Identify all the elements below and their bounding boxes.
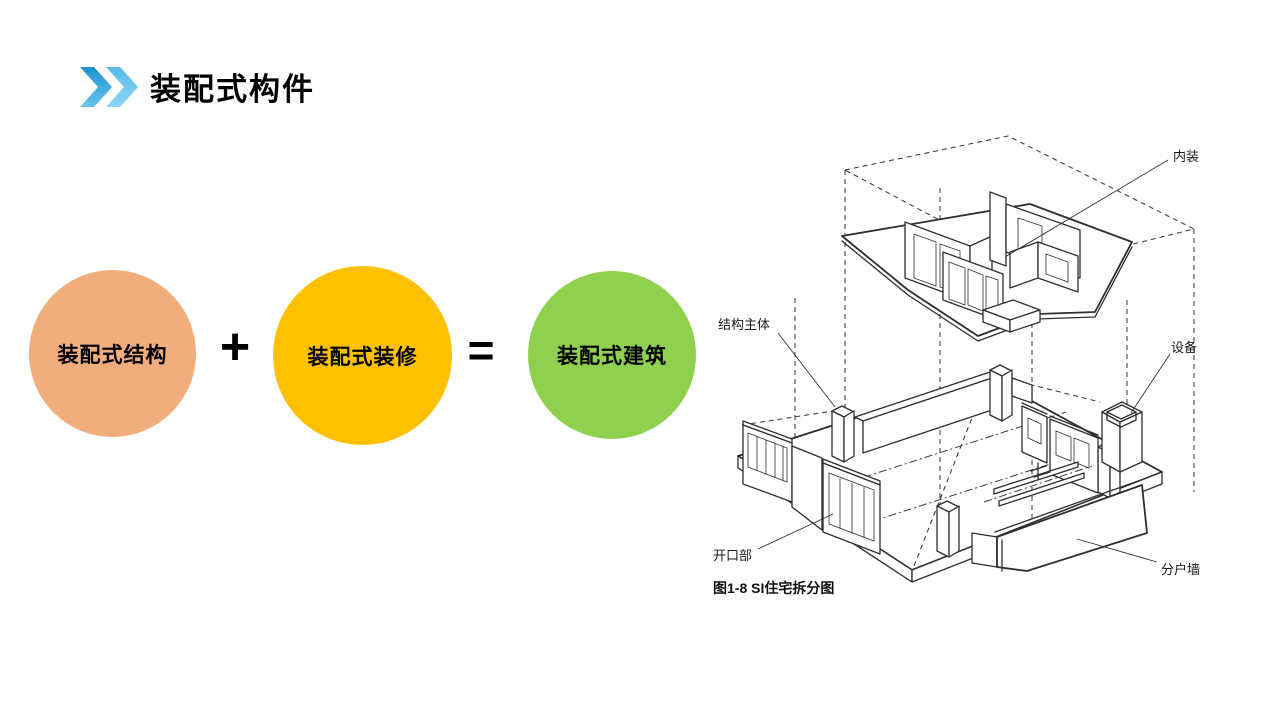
- circle-prefab-decoration: 装配式装修: [273, 266, 452, 445]
- double-chevron-icon: [80, 66, 142, 108]
- structure-assembly: [738, 365, 1162, 582]
- equals-operator: =: [446, 315, 516, 385]
- circle-prefab-decoration-label: 装配式装修: [308, 341, 418, 371]
- label-party-wall: 分户墙: [1161, 562, 1200, 577]
- si-house-exploded-figure: 内装 结构主体 设备 开口部 分户墙 图1-8 SI住宅拆分图: [700, 130, 1240, 600]
- column-front: [937, 501, 959, 557]
- circle-prefab-building: 装配式建筑: [528, 271, 696, 439]
- plus-operator: +: [200, 312, 270, 382]
- figure-caption: 图1-8 SI住宅拆分图: [713, 580, 834, 596]
- label-opening: 开口部: [713, 548, 752, 563]
- column-left: [832, 406, 854, 462]
- circle-prefab-building-label: 装配式建筑: [557, 340, 667, 370]
- equipment-shaft: [1102, 402, 1142, 472]
- label-interior: 内装: [1173, 149, 1199, 164]
- si-house-exploded-diagram: 内装 结构主体 设备 开口部 分户墙 图1-8 SI住宅拆分图: [700, 130, 1240, 600]
- interior-assembly: [842, 192, 1132, 341]
- label-equipment: 设备: [1171, 340, 1197, 355]
- circle-prefab-structure-label: 装配式结构: [58, 339, 168, 369]
- page-title: 装配式构件: [150, 64, 315, 109]
- circle-prefab-structure: 装配式结构: [29, 270, 196, 437]
- label-structure: 结构主体: [718, 317, 770, 332]
